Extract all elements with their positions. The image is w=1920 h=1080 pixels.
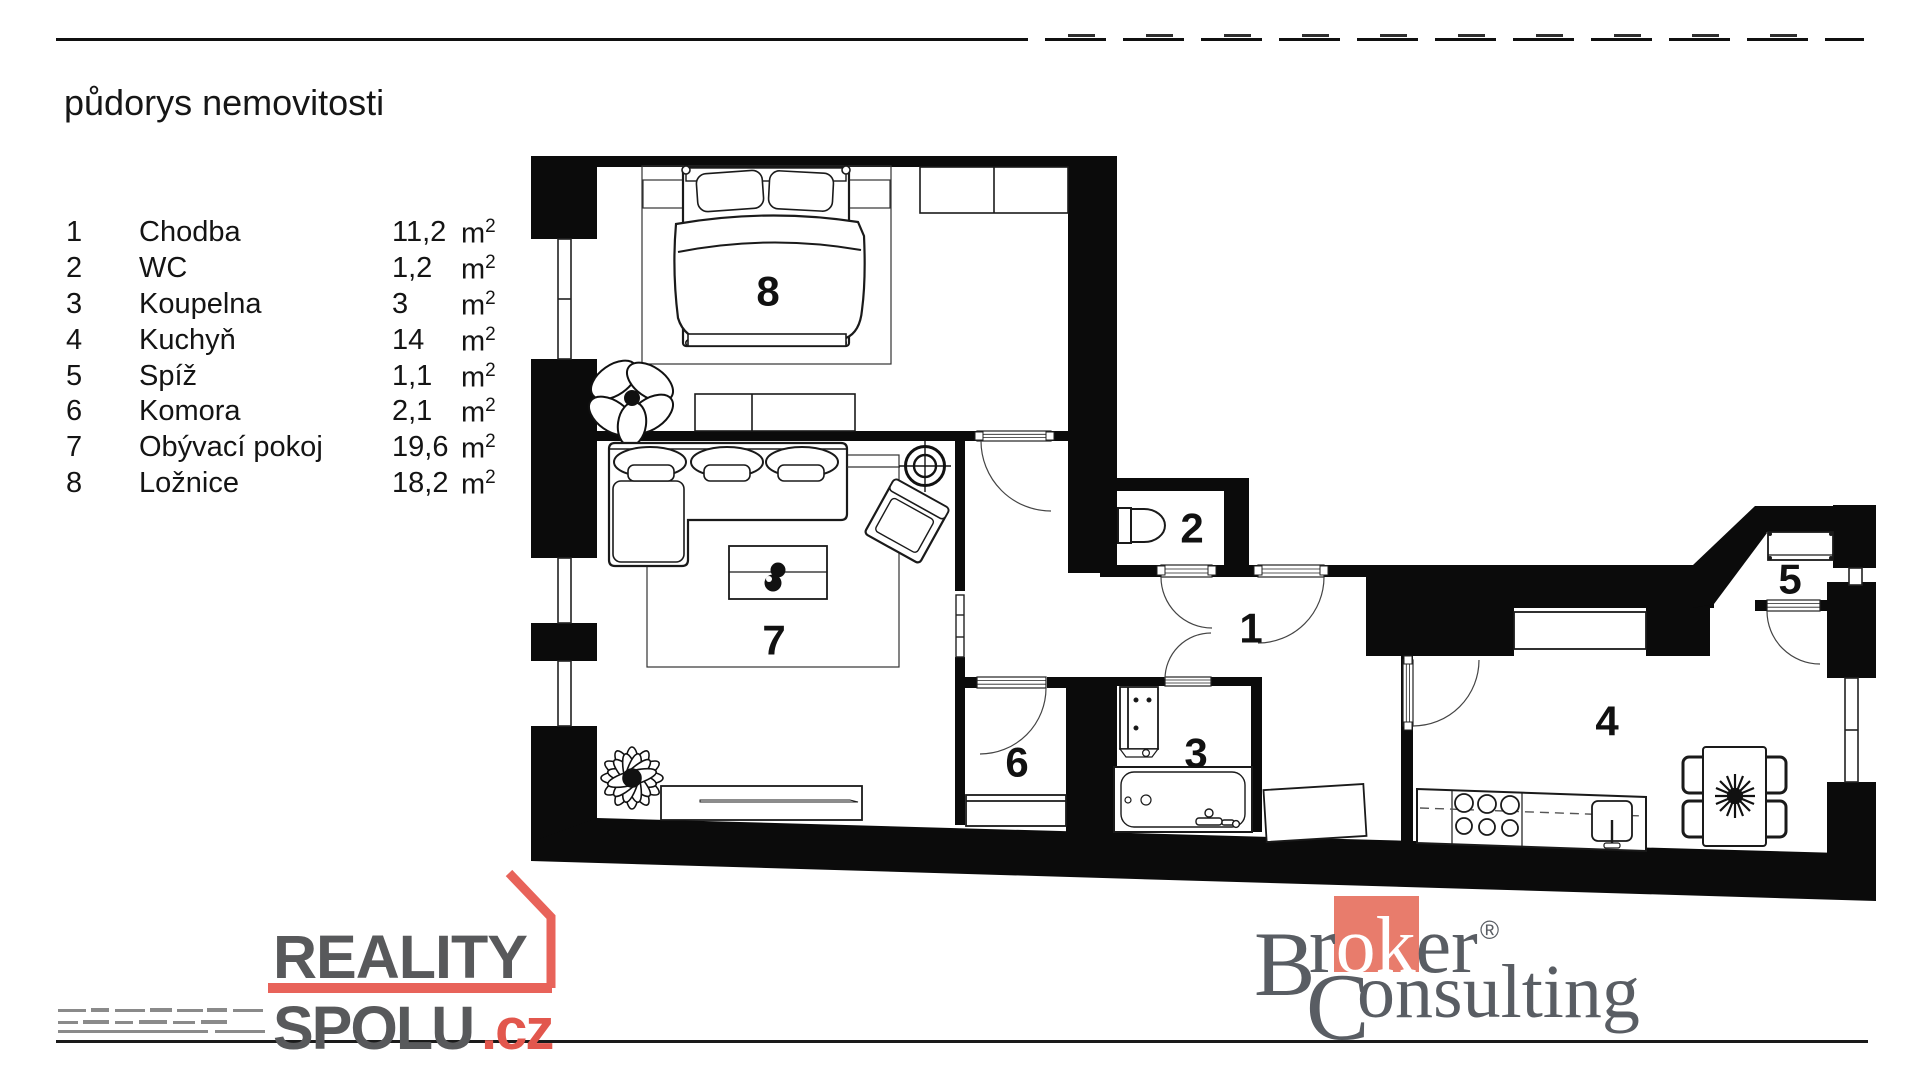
- svg-text:®: ®: [1480, 915, 1499, 945]
- svg-text:.cz: .cz: [481, 997, 552, 1062]
- svg-text:SPOLU: SPOLU: [273, 994, 473, 1062]
- svg-text:REALITY: REALITY: [273, 923, 527, 991]
- svg-text:onsulting: onsulting: [1357, 950, 1640, 1034]
